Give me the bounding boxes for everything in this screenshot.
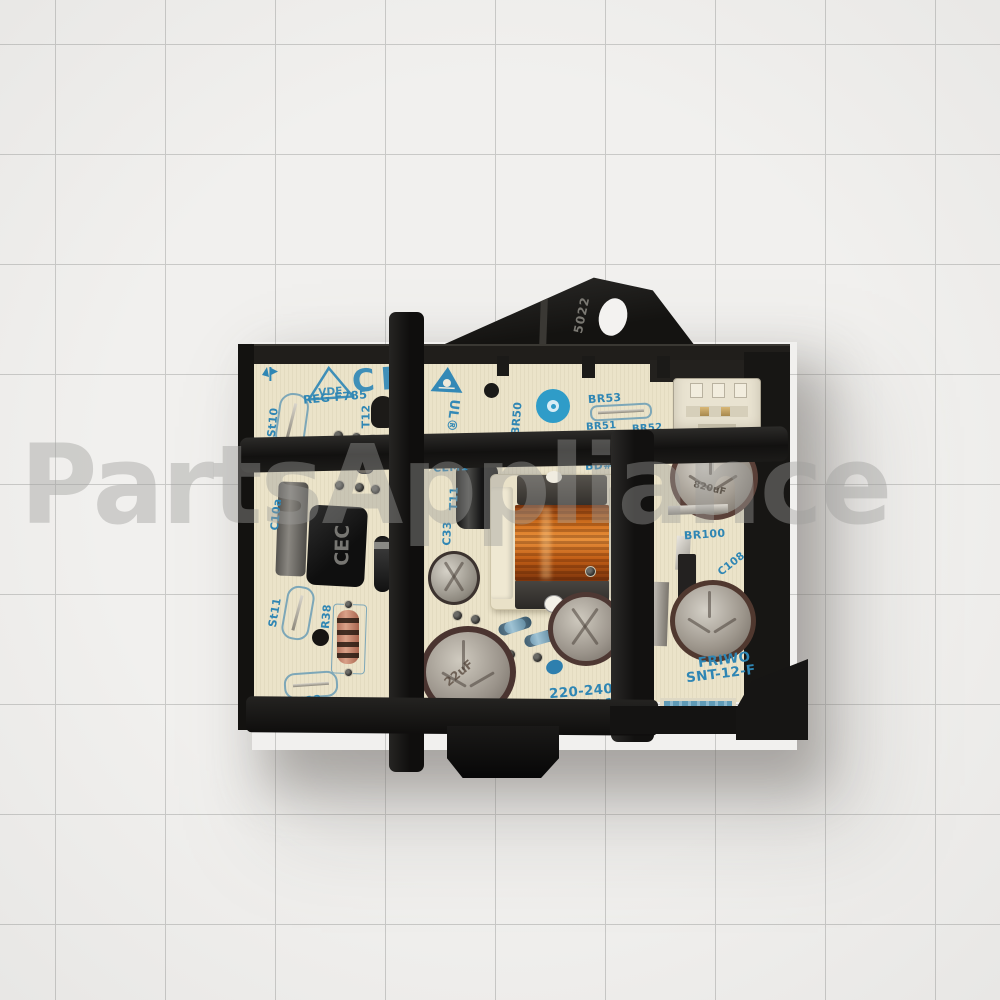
solder-pad (532, 652, 543, 663)
connector-pin (721, 407, 730, 416)
capacitor-mid-left (428, 551, 480, 605)
solder-pad (334, 480, 345, 491)
esd-triangle-icon (429, 365, 465, 399)
bracket-marking: 5022 (571, 295, 592, 334)
pcb-hole (484, 383, 499, 398)
solder-pad (354, 482, 365, 493)
resistor-r38 (337, 610, 359, 664)
bracket-screw-hole (595, 295, 631, 339)
transformer-core-top (517, 475, 607, 505)
capacitor-cec: CEC (306, 505, 368, 588)
label-br53: BR53 (588, 391, 622, 406)
cec-marking: CEC (331, 525, 354, 566)
board-left-edge (238, 344, 254, 730)
solder-blob (312, 629, 329, 646)
label-r38: R38 (319, 604, 334, 630)
product-photo-scene: 5022 VDE REG F785 CE UL® St10 T12 (0, 0, 1000, 1000)
resistor-lead (344, 600, 353, 609)
label-t12: T12 (359, 405, 372, 429)
bracket-ridge (539, 296, 548, 350)
solder-pad (370, 484, 381, 495)
frame-clip-mid (582, 356, 595, 378)
certification-symbol-icon (258, 363, 282, 387)
solder-pad (470, 614, 481, 625)
transformer-flange-left (491, 487, 513, 599)
bottom-mount-foot (447, 726, 559, 778)
solder-pad (452, 610, 463, 621)
frame-clip-left (497, 356, 509, 376)
resistor-lead (344, 668, 353, 677)
label-t11: T11 (447, 486, 461, 510)
solder-pad (585, 566, 596, 577)
transformer-nub-top (546, 471, 562, 483)
frame-strut-right (611, 430, 654, 742)
connector-pin (700, 407, 709, 416)
frame-clip-right (657, 356, 670, 378)
label-c33: C33 (440, 521, 454, 546)
blue-target-pad (536, 389, 570, 423)
